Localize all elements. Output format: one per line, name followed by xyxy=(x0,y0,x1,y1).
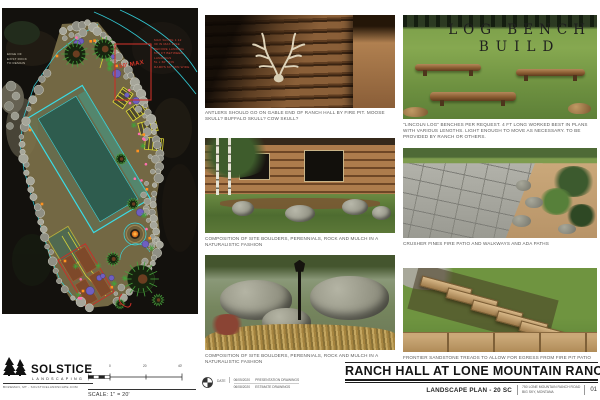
boulder-symbol xyxy=(151,155,159,163)
boulder-symbol xyxy=(143,114,147,118)
perennial-pink-symbol xyxy=(128,89,131,92)
boulder-symbol xyxy=(150,169,155,174)
photo-crusher-fines-patio xyxy=(403,148,597,238)
revision-table: 06/05/2020 PRESENTATION DRAWINGS 06/08/2… xyxy=(234,377,300,390)
boulder-symbol xyxy=(53,268,58,273)
log-stump xyxy=(403,107,428,117)
light-orange-symbol xyxy=(29,129,32,132)
photo-caption: FRONTIER SANDSTONE TREADS TO ALLOW FOR E… xyxy=(403,355,595,361)
photo-overlay-title: LOG BENCH BUILD xyxy=(448,22,591,55)
aspen-trunk xyxy=(216,138,219,195)
scale-bar-block: 10 0 20 40' SCALE: 1" = 20' xyxy=(88,364,196,398)
title-block: RANCH HALL AT LONE MOUNTAIN RANCH LANDSC… xyxy=(345,362,598,395)
photo-antlers-gable xyxy=(205,15,395,108)
boulder-symbol xyxy=(79,29,87,37)
perennial-purple-symbol xyxy=(86,287,94,295)
perennial-pink-symbol xyxy=(78,297,81,300)
boulder-symbol xyxy=(153,141,161,149)
scale-tick: 0 xyxy=(109,364,111,368)
sheet-title: RANCH HALL AT LONE MOUNTAIN RANCH xyxy=(345,364,598,378)
revision-desc: PRESENTATION DRAWINGS xyxy=(255,378,299,382)
light-orange-symbol xyxy=(41,203,44,206)
perennial-purple-symbol xyxy=(109,275,114,280)
light-orange-symbol xyxy=(148,237,151,240)
boulder-symbol xyxy=(154,173,164,183)
perennial-purple-symbol xyxy=(142,241,149,248)
boulder-symbol xyxy=(61,286,68,293)
perennial-pink-symbol xyxy=(75,36,78,39)
boulder-symbol xyxy=(26,106,31,111)
boulder-symbol xyxy=(24,170,30,176)
revision-date-header: DATE xyxy=(217,377,230,383)
boulder-symbol xyxy=(143,103,148,108)
revision-block: DATE 06/05/2020 PRESENTATION DRAWINGS 06… xyxy=(202,377,299,390)
revision-date: 06/05/2020 xyxy=(234,378,251,382)
tree-trunk xyxy=(73,50,80,57)
perennial-purple-symbol xyxy=(133,97,140,104)
boulder-symbol xyxy=(62,36,67,41)
boulder-symbol xyxy=(146,218,150,222)
boulder-symbol xyxy=(114,292,118,296)
scale-tick-labels: 10 0 20 40' xyxy=(88,364,196,369)
boulder-symbol xyxy=(69,32,74,37)
boulder-symbol xyxy=(43,69,51,77)
photo-caption: "LINCOLN LOG" BENCHES PER REQUEST. 4 FT … xyxy=(403,122,595,140)
boulder-symbol xyxy=(150,261,155,266)
boulder-symbol xyxy=(152,183,157,188)
logo-type-line: LANDSCAPING xyxy=(32,377,93,381)
photo-caption: ANTLERS SHOULD GO ON GABLE END OF RANCH … xyxy=(205,110,393,122)
perennial-purple-symbol xyxy=(125,93,130,98)
boulder-symbol xyxy=(118,284,125,291)
tree-trunk xyxy=(132,202,135,205)
boulder-symbol xyxy=(150,215,158,223)
log-stump xyxy=(568,103,591,114)
log-bench xyxy=(415,64,481,71)
overlay-title-line2: BUILD xyxy=(448,39,591,55)
boulder-symbol xyxy=(154,239,158,243)
perennial-pink-symbol xyxy=(145,163,148,166)
boulder-symbol xyxy=(152,130,157,135)
tree-trunk xyxy=(157,298,160,301)
boulder-symbol xyxy=(71,296,76,301)
perennial-purple-symbol xyxy=(136,209,143,216)
light-orange-symbol xyxy=(136,150,139,153)
boulder-symbol xyxy=(128,73,134,79)
ada-ramp-note: MAX SLOPE 1:12 30 IN MAX RISE BEFORE LAN… xyxy=(154,38,189,69)
boulder xyxy=(525,197,542,209)
tree-trunk xyxy=(120,157,123,160)
log-bench xyxy=(516,69,586,76)
boulder-symbol xyxy=(48,257,57,266)
boulder-symbol xyxy=(49,250,54,255)
boulder xyxy=(342,199,369,215)
revision-row: 06/08/2020 ESTIMATE DRAWINGS xyxy=(234,383,300,390)
overlay-title-line1: LOG BENCH xyxy=(448,22,591,38)
presentation-sheet: MAX SLOPE 1:12 30 IN MAX RISE BEFORE LAN… xyxy=(0,0,600,400)
perennial-pink-symbol xyxy=(142,137,145,140)
revision-date: 06/08/2020 xyxy=(234,385,251,389)
log-bench xyxy=(430,92,515,101)
boulder-symbol xyxy=(29,96,37,104)
boulder-symbol xyxy=(145,121,150,126)
boulder-symbol xyxy=(135,106,142,113)
boulder-symbol xyxy=(19,141,25,147)
boulder-symbol xyxy=(38,219,44,225)
light-orange-symbol xyxy=(115,65,118,68)
boulder-symbol xyxy=(45,244,50,249)
perennial-purple-symbol xyxy=(113,69,121,77)
boulder-symbol xyxy=(56,278,61,283)
scale-tick: 20 xyxy=(143,364,147,368)
tree-trunk xyxy=(102,46,109,53)
perennial-pink-symbol xyxy=(79,278,82,281)
sheet-number: 01 xyxy=(590,387,598,393)
boulder-symbol xyxy=(34,85,44,95)
boulder-symbol xyxy=(26,177,34,185)
light-orange-symbol xyxy=(111,286,114,289)
logo-name: SOLSTICE xyxy=(31,365,93,377)
tree-trunk xyxy=(138,274,148,284)
perennial-pink-symbol xyxy=(138,133,141,136)
perennial-pink-symbol xyxy=(129,102,132,105)
scale-label: SCALE: 1" = 20' xyxy=(88,392,196,398)
red-shrub xyxy=(209,314,245,335)
boulder-symbol xyxy=(39,76,46,83)
scale-tick: 40' xyxy=(178,364,182,368)
boulder xyxy=(512,215,531,228)
boulder-symbol xyxy=(85,304,93,312)
boulder xyxy=(285,205,315,222)
scale-bar-icon xyxy=(88,373,196,382)
photo-cabin-landscape xyxy=(205,138,395,233)
project-address: 750 LONE MOUNTAIN RANCH ROAD BIG SKY, MO… xyxy=(517,385,585,395)
lamp-head xyxy=(294,260,305,272)
antlers-icon xyxy=(235,28,322,86)
sandstone-blocks xyxy=(403,332,597,352)
title-rule-top xyxy=(345,362,598,363)
skull-icon xyxy=(274,74,284,82)
perennial-purple-symbol xyxy=(100,274,105,279)
boulder-symbol xyxy=(114,53,122,61)
boulder-symbol xyxy=(151,123,158,130)
scale-divider xyxy=(88,389,196,390)
boulder xyxy=(558,224,575,235)
boulder-symbol xyxy=(59,27,66,34)
boulder-symbol xyxy=(19,154,29,164)
boulder-symbol xyxy=(34,204,41,211)
boulder-symbol xyxy=(153,228,160,235)
boulder-symbol xyxy=(30,194,37,201)
boulder xyxy=(232,201,255,216)
compass-icon xyxy=(202,377,213,388)
logo-contact: BOZEMAN, MT - SOLSTICELANDSCAPE.COM xyxy=(3,385,93,389)
boulder-symbol xyxy=(19,134,24,139)
light-orange-symbol xyxy=(64,260,67,263)
photo-caption: CRUSHER FINES FIRE PATIO AND WALKWAYS AN… xyxy=(403,241,595,247)
boulder-symbol xyxy=(28,187,34,193)
perennial-pink-symbol xyxy=(145,228,148,231)
logo-divider xyxy=(3,383,93,384)
photo-boulders-lamp xyxy=(205,255,395,350)
title-rule-double xyxy=(345,379,598,383)
boulder-symbol xyxy=(141,192,147,198)
light-orange-symbol xyxy=(146,188,149,191)
scale-tick: 10 xyxy=(88,364,92,368)
photo-caption: COMPOSITION OF SITE BOULDERS, PERENNIALS… xyxy=(205,236,393,248)
perennial-pink-symbol xyxy=(134,177,137,180)
boulder-symbol xyxy=(40,226,47,233)
boulder xyxy=(310,276,390,320)
aspen-trunk xyxy=(228,138,231,195)
sunlit-log-post xyxy=(353,15,395,108)
lamp-post xyxy=(298,267,301,319)
address-line2: BIG SKY, MONTANA xyxy=(522,390,580,395)
boulder-symbol xyxy=(144,198,151,205)
cabin-window xyxy=(304,150,344,181)
perennial-pink-symbol xyxy=(140,179,143,182)
light-orange-symbol xyxy=(93,39,96,42)
photo-log-bench-build: LOG BENCH BUILD xyxy=(403,15,597,119)
edge-condition-note: EDGE OF EXIST ROCK TO REMAIN xyxy=(7,52,27,66)
revision-desc: ESTIMATE DRAWINGS xyxy=(255,385,290,389)
boulder xyxy=(372,206,391,219)
boulder-symbol xyxy=(151,255,157,261)
boulder-symbol xyxy=(150,202,156,208)
boulder-symbol xyxy=(126,289,133,296)
boulder-symbol xyxy=(144,181,148,185)
boulder-symbol xyxy=(20,149,25,154)
pine-trees-icon xyxy=(3,356,29,376)
light-orange-symbol xyxy=(143,133,146,136)
sheet-subtitle: LANDSCAPE PLAN - 20 SC xyxy=(426,387,512,394)
boulder-symbol xyxy=(40,233,49,242)
light-orange-symbol xyxy=(56,55,59,58)
firm-logo: SOLSTICE LANDSCAPING BOZEMAN, MT - SOLST… xyxy=(3,356,93,389)
photo-sandstone-treads xyxy=(403,268,597,352)
boulder-symbol xyxy=(22,117,31,126)
light-orange-symbol xyxy=(82,290,85,293)
tree-trunk xyxy=(112,257,116,261)
light-orange-symbol xyxy=(89,40,92,43)
boulder-symbol xyxy=(152,191,157,196)
